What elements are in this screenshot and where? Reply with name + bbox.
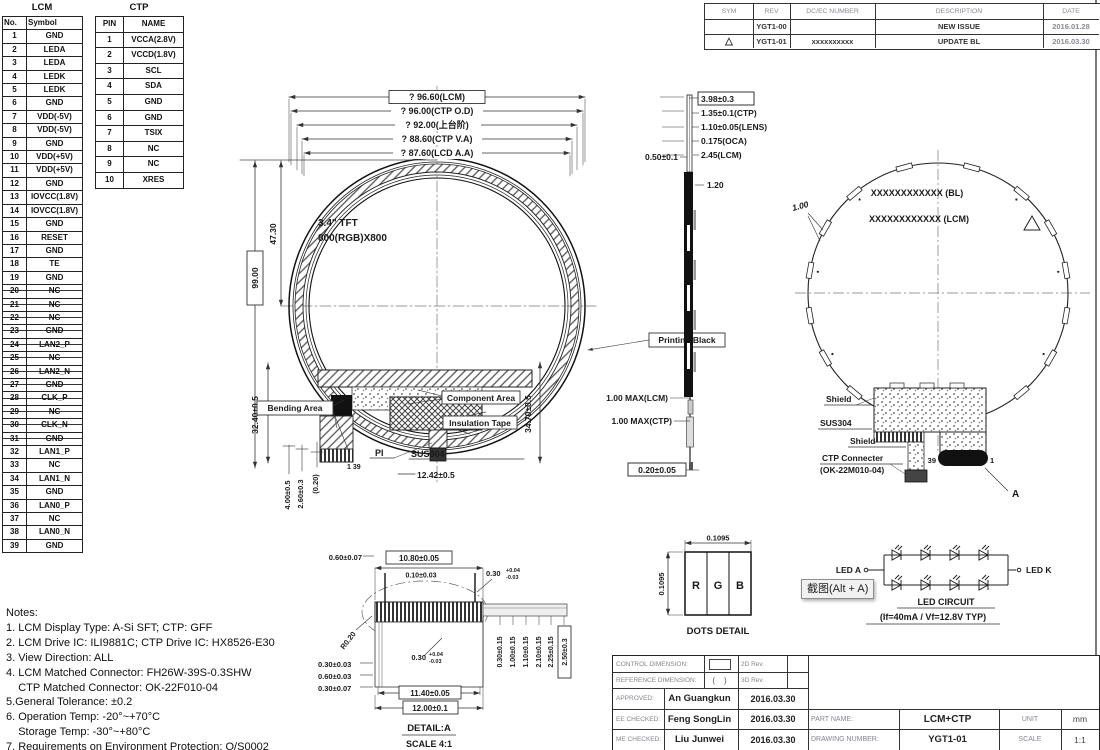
table-cell: 25 (3, 352, 27, 365)
dim-pitch: 0.30 (486, 569, 501, 578)
dim-label-ctp-od: ? 96.00(CTP O.D) (401, 106, 474, 116)
dots-detail-title: DOTS DETAIL (687, 626, 750, 637)
dim-010-003: 0.10±0.03 (405, 573, 436, 580)
table-cell: CLK_P (27, 392, 83, 405)
part-name-label: PART NAME: (808, 709, 900, 730)
leader-100a (808, 213, 823, 230)
ctp-connecter-pn-label: (OK-22M010-04) (820, 465, 884, 475)
note-line: 6. Operation Temp: -20°~+70°C (6, 710, 336, 725)
dim-label-lcm-diameter: ? 96.60(LCM) (409, 92, 465, 102)
table-row: 39GND (3, 539, 83, 552)
table-cell: 2 (3, 43, 27, 56)
table-cell: NC (124, 141, 184, 157)
table-cell: 32 (3, 446, 27, 459)
table-row: 35GND (3, 486, 83, 499)
approved-name: An Guangkun (661, 688, 739, 710)
table-cell: NC (27, 298, 83, 311)
table-cell: 6 (96, 110, 124, 126)
dim-r020: R0.20 (338, 630, 357, 651)
shield-tab (950, 383, 964, 388)
table-cell: TSIX (124, 126, 184, 142)
table-cell: VDD(+5V) (27, 151, 83, 164)
table-row: 12GND (3, 177, 83, 190)
control-dimension-symbol (701, 656, 739, 673)
table-cell: 38 (3, 526, 27, 539)
table-row: 29NC (3, 405, 83, 418)
dim-r-250: 2.50±0.3 (562, 638, 569, 665)
table-row: 4LEDK (3, 70, 83, 83)
table-cell: 20 (3, 285, 27, 298)
table-cell: GND (27, 271, 83, 284)
table-cell: 5 (96, 94, 124, 110)
table-cell: 27 (3, 378, 27, 391)
table-cell: 9 (96, 157, 124, 173)
table-cell: 24 (3, 338, 27, 351)
table-row: 5GND (96, 94, 184, 110)
dim-label-4730: 47.30 (268, 223, 278, 245)
table-row: 20NC (3, 285, 83, 298)
note-line: 7. Requirements on Environment Protectio… (6, 740, 336, 750)
approved-date: 2016.03.30 (738, 688, 809, 710)
table-row: 32LAN1_P (3, 446, 83, 459)
led-spec-label: (If=40mA / Vf=12.8V TYP) (880, 612, 986, 622)
table-cell: 14 (3, 204, 27, 217)
tail-tip (689, 462, 693, 470)
table-cell: LAN1_P (27, 446, 83, 459)
table-cell: 1 (3, 30, 27, 43)
me-checked-label: ME CHECKED: (613, 729, 665, 750)
ctp-fpc-strip (908, 442, 924, 470)
table-row: 3LEDA (3, 57, 83, 70)
table-cell: NC (27, 459, 83, 472)
table-cell: 4 (96, 79, 124, 95)
table-cell: 34 (3, 472, 27, 485)
dim-label-lcd-aa: ? 87.60(LCD A.A) (401, 148, 474, 158)
ctp-table-title: CTP (95, 2, 183, 13)
table-cell: GND (27, 486, 83, 499)
note-line: 3. View Direction: ALL (6, 651, 336, 666)
gap-label: 0.50±0.1 (645, 152, 678, 162)
ee-checked-name: Feng SongLin (661, 709, 739, 730)
component-area-label: Component Area (447, 393, 515, 403)
drawing-number-label: DRAWING NUMBER: (808, 729, 900, 750)
dim-label-020: (0.20) (311, 474, 320, 494)
table-row: 16RESET (3, 231, 83, 244)
dots-width-dim: 0.1095 (707, 534, 730, 543)
rev-r1-date: 2016.01.28 (1043, 19, 1099, 35)
table-row: 30CLK_N (3, 419, 83, 432)
rev-3d-value (784, 672, 809, 689)
table-cell: NC (27, 311, 83, 324)
table-cell: 29 (3, 405, 27, 418)
circuit-wires (868, 555, 1016, 585)
dim-label-100: 1.00 (791, 199, 810, 213)
dot-g: G (714, 580, 723, 592)
table-cell: 16 (3, 231, 27, 244)
table-cell: SCL (124, 63, 184, 79)
sus304-label: SUS304 (411, 449, 445, 459)
fpc-tail (429, 430, 447, 448)
pin-comb (375, 602, 483, 622)
panel-resolution-label: 800(RGB)X800 (318, 233, 387, 244)
table-cell: GND (27, 97, 83, 110)
note-line: 4. LCM Matched Connector: FH26W-39S-0.3S… (6, 666, 336, 681)
table-cell: GND (27, 137, 83, 150)
table-row: 21NC (3, 298, 83, 311)
table-row: 2VCCD(1.8V) (96, 48, 184, 64)
title-block-blank-area (808, 656, 1099, 710)
ee-checked-label: EE CHECKED: (613, 709, 665, 730)
bottom-small-dims (283, 442, 323, 474)
table-cell: 15 (3, 218, 27, 231)
table-row: 3SCL (96, 63, 184, 79)
table-row: 6GND (96, 110, 184, 126)
rev-header-sym: SYM (705, 4, 754, 20)
table-row: 8NC (96, 141, 184, 157)
table-cell: VCCA(2.8V) (124, 32, 184, 48)
table-cell: 33 (3, 459, 27, 472)
table-cell: LEDK (27, 84, 83, 97)
table-row: 8VDD(-5V) (3, 124, 83, 137)
rev-header-desc: DESCRIPTION (875, 4, 1044, 20)
dim-label-step: ? 92.00(上台阶) (405, 119, 469, 130)
table-row: 24LAN2_P (3, 338, 83, 351)
control-dimension-label: CONTROL DIMENSION: (613, 656, 705, 673)
table-cell: 8 (96, 141, 124, 157)
stack-oca-label: 0.175(OCA) (701, 136, 747, 146)
dim-1140: 11.40±0.05 (410, 689, 450, 698)
dim-r-210: 2.10±0.15 (536, 636, 543, 667)
stiffener-plate (483, 604, 567, 616)
ctp-pin-table: PINNAME1VCCA(2.8V)2VCCD(1.8V)3SCL4SDA5GN… (95, 16, 184, 189)
table-cell: 9 (3, 137, 27, 150)
me-checked-name: Liu Junwei (661, 729, 739, 750)
note-line: Storage Temp: -30°~+80°C (6, 725, 336, 740)
back-view-drawing: XXXXXXXXXXXX (BL) XXXXXXXXXXXX (LCM) 1.0… (791, 150, 1090, 500)
lcm-part-number-label: XXXXXXXXXXXX (LCM) (869, 214, 969, 224)
table-row: 2LEDA (3, 43, 83, 56)
table-row: 23GND (3, 325, 83, 338)
table-cell: GND (27, 30, 83, 43)
shield-tab (890, 383, 904, 388)
table-row: 10XRES (96, 172, 184, 188)
tape-bump (694, 260, 697, 280)
column-header: NAME (124, 17, 184, 33)
table-cell: VDD(-5V) (27, 124, 83, 137)
table-cell: SDA (124, 79, 184, 95)
note-line: CTP Matched Connector: OK-22F010-04 (6, 681, 336, 696)
dim-label-260: 2.60±0.3 (296, 479, 305, 508)
table-cell: GND (27, 244, 83, 257)
dim-1200: 12.00±0.1 (412, 704, 448, 713)
table-cell: VCCD(1.8V) (124, 48, 184, 64)
dim-label-9900: 99.00 (250, 267, 260, 289)
sus304-comb (874, 432, 924, 442)
table-cell: LAN0_N (27, 526, 83, 539)
dim-1080: 10.80±0.05 (399, 554, 440, 563)
table-cell: LAN0_P (27, 499, 83, 512)
sus304-label: SUS304 (820, 418, 852, 428)
pin-1-39-marks: 1 39 (347, 464, 361, 471)
table-cell: 18 (3, 258, 27, 271)
table-cell: GND (27, 378, 83, 391)
table-row: 6GND (3, 97, 83, 110)
stack-ctp-label: 1.35±0.1(CTP) (701, 108, 757, 118)
table-cell: LEDA (27, 43, 83, 56)
note-line: Notes: (6, 606, 336, 621)
leader-detail-a (985, 468, 1008, 491)
notes-block: Notes:1. LCM Display Type: A-Si SFT; CTP… (6, 606, 336, 750)
table-row: 13IOVCC(1.8V) (3, 191, 83, 204)
table-cell: GND (27, 539, 83, 552)
table-row: 18TE (3, 258, 83, 271)
dim-label-1242: 12.42±0.5 (417, 470, 455, 480)
table-cell: TE (27, 258, 83, 271)
table-cell: 30 (3, 419, 27, 432)
table-cell: GND (27, 325, 83, 338)
stack-total-label: 3.98±0.3 (701, 94, 734, 104)
table-row: 11VDD(+5V) (3, 164, 83, 177)
table-cell: 17 (3, 244, 27, 257)
table-cell: 31 (3, 432, 27, 445)
shield-label-top: Shield (826, 394, 852, 404)
column-header: No. (3, 17, 27, 30)
table-cell: 26 (3, 365, 27, 378)
rev-r1-sym (705, 19, 754, 35)
table-cell: 3 (96, 63, 124, 79)
rev-header-dc: DC/EC NUMBER (790, 4, 876, 20)
table-row: 31GND (3, 432, 83, 445)
tape-bump (694, 352, 697, 372)
rev-r1-dc (790, 19, 876, 35)
table-cell: LAN2_P (27, 338, 83, 351)
rev-r2-date: 2016.03.30 (1043, 34, 1099, 48)
dots-detail-drawing: R G B 0.1095 0.1095 DOTS DETAIL (657, 533, 751, 637)
table-row: 1VCCA(2.8V) (96, 32, 184, 48)
led-cathode-label: LED K (1026, 565, 1052, 575)
tape-bump (694, 310, 697, 330)
part-name-value: LCM+CTP (896, 709, 1000, 730)
approved-label: APPROVED: (613, 688, 665, 710)
note-line: 2. LCM Drive IC: ILI9881C; CTP Drive IC:… (6, 636, 336, 651)
table-row: 36LAN0_P (3, 499, 83, 512)
table-cell: NC (27, 352, 83, 365)
rev-r2-desc: UPDATE BL (875, 34, 1044, 48)
shield-tab (920, 383, 934, 388)
table-row: 4SDA (96, 79, 184, 95)
table-cell: 13 (3, 191, 27, 204)
table-cell: VDD(+5V) (27, 164, 83, 177)
table-cell: GND (124, 94, 184, 110)
table-cell: RESET (27, 231, 83, 244)
bezel-step-bar (318, 370, 532, 387)
detail-a-title: DETAIL:A (407, 723, 451, 734)
table-cell: 5 (3, 84, 27, 97)
dim-mid-030: 0.30 (411, 653, 426, 662)
lcm-pin-table: No.Symbol1GND2LEDA3LEDA4LEDK5LEDK6GND7VD… (2, 16, 83, 553)
reference-dimension-symbol: ( ) (701, 672, 739, 689)
ee-checked-date: 2016.03.30 (738, 709, 809, 730)
table-cell: 10 (3, 151, 27, 164)
table-cell: 7 (96, 126, 124, 142)
dim-label-ctp-va: ? 88.60(CTP V.A) (401, 134, 472, 144)
table-cell: XRES (124, 172, 184, 188)
table-row: 1GND (3, 30, 83, 43)
ctp-fpc-bump (687, 417, 694, 447)
detail-a-drawing: 0.60±0.07 10.80±0.05 0.10±0.03 0.30 +0.0… (318, 551, 571, 749)
table-row: 9GND (3, 137, 83, 150)
table-cell: LEDK (27, 70, 83, 83)
control-symbol-box (709, 659, 731, 670)
table-cell: NC (124, 157, 184, 173)
table-row: 10VDD(+5V) (3, 151, 83, 164)
dim-label-400: 4.00±0.5 (283, 480, 292, 509)
dim-r-225: 2.25±0.15 (548, 636, 555, 667)
detail-a-ref-label: A (1012, 489, 1019, 500)
title-block: CONTROL DIMENSION: 2D Rev. REFERENCE DIM… (612, 655, 1100, 750)
column-header: PIN (96, 17, 124, 33)
table-cell: 21 (3, 298, 27, 311)
front-view-drawing: ? 96.60(LCM) ? 96.00(CTP O.D) ? 92.00(上台… (240, 86, 725, 510)
tape-bump (694, 210, 697, 230)
pi-label: PI (375, 448, 384, 458)
ctp-connecter-label: CTP Connecter (822, 453, 884, 463)
dim-label-3470: 34.70±0.5 (523, 395, 533, 433)
table-cell: 3 (3, 57, 27, 70)
table-row: 37NC (3, 513, 83, 526)
table-cell: 19 (3, 271, 27, 284)
scale-value: 1:1 (1061, 729, 1099, 750)
rev-r1-rev: YGT1-00 (753, 19, 791, 35)
lcm-fpc-bump (688, 400, 693, 414)
unit-value: mm (1061, 709, 1099, 730)
dim-r-100: 1.00±0.15 (510, 636, 517, 667)
pin1-mark: 1 (990, 456, 994, 465)
table-row: 5LEDK (3, 84, 83, 97)
dim-pitch-minus: -0.03 (506, 575, 519, 581)
ctp-connecter-leader (890, 464, 905, 474)
shield-label-bottom: Shield (850, 436, 876, 446)
table-cell: 8 (3, 124, 27, 137)
table-cell: 10 (96, 172, 124, 188)
stack-lens-label: 1.10±0.05(LENS) (701, 122, 767, 132)
dot-b: B (736, 580, 744, 592)
table-row: 7VDD(-5V) (3, 110, 83, 123)
revision-table: SYM REV DC/EC NUMBER DESCRIPTION DATE YG… (704, 3, 1100, 50)
rev-r2-dc: xxxxxxxxxx (790, 34, 876, 48)
bl-part-number-label: XXXXXXXXXXXX (BL) (871, 188, 964, 198)
revision-triangle-mark (1024, 216, 1040, 230)
step-120-label: 1.20 (707, 180, 724, 190)
stack-lcm-label: 2.45(LCM) (701, 150, 742, 160)
panel-size-label: 3.4" TFT (318, 218, 358, 229)
table-row: 38LAN0_N (3, 526, 83, 539)
profile-slot (687, 225, 690, 251)
table-row: 34LAN1_N (3, 472, 83, 485)
table-cell: CLK_N (27, 419, 83, 432)
table-row: 7TSIX (96, 126, 184, 142)
table-cell: 6 (3, 97, 27, 110)
dim-mid-plus: +0.04 (429, 652, 444, 658)
table-row: 19GND (3, 271, 83, 284)
table-cell: 28 (3, 392, 27, 405)
dim-r-110: 1.10±0.15 (523, 636, 530, 667)
unit-label: UNIT (999, 709, 1062, 730)
rev-r2-sym: △ (705, 34, 754, 48)
rev-2d-label: 2D Rev. (738, 656, 788, 673)
table-cell: 22 (3, 311, 27, 324)
pin39-mark: 39 (928, 456, 936, 465)
rev-r1-desc: NEW ISSUE (875, 19, 1044, 35)
column-header: Symbol (27, 17, 83, 30)
table-cell: LAN1_N (27, 472, 83, 485)
table-cell: GND (27, 218, 83, 231)
table-row: 28CLK_P (3, 392, 83, 405)
table-cell: 12 (3, 177, 27, 190)
table-cell: NC (27, 405, 83, 418)
table-row: 14IOVCC(1.8V) (3, 204, 83, 217)
lcm-connector-oval (938, 450, 988, 466)
table-cell: 35 (3, 486, 27, 499)
table-cell: 39 (3, 539, 27, 552)
ctp-connector-body (905, 470, 927, 482)
table-cell: IOVCC(1.8V) (27, 191, 83, 204)
led-anode-label: LED A (836, 565, 861, 575)
table-cell: 23 (3, 325, 27, 338)
table-cell: GND (27, 432, 83, 445)
table-row: 15GND (3, 218, 83, 231)
dim-r-030: 0.30±0.15 (497, 636, 504, 667)
table-cell: 1 (96, 32, 124, 48)
lcm-table-title: LCM (2, 2, 82, 13)
rev-header-date: DATE (1043, 4, 1099, 20)
table-row: 33NC (3, 459, 83, 472)
table-row: 9NC (96, 157, 184, 173)
note-line: 5.General Tolerance: ±0.2 (6, 695, 336, 710)
rev-3d-label: 3D Rev. (738, 672, 788, 689)
dim-mid-minus: -0.03 (429, 659, 442, 665)
table-cell: VDD(-5V) (27, 110, 83, 123)
table-cell: 37 (3, 513, 27, 526)
tail-thickness-label: 0.20±0.05 (638, 465, 676, 475)
rev-2d-value (784, 656, 809, 673)
profile-slot (687, 285, 690, 311)
table-cell: GND (124, 110, 184, 126)
ctp-max-label: 1.00 MAX(CTP) (612, 416, 673, 426)
detail-a-scale: SCALE 4:1 (406, 739, 452, 749)
leader-printing-black (588, 340, 649, 350)
node-k (1017, 568, 1021, 572)
note-line: 1. LCM Display Type: A-Si SFT; CTP: GFF (6, 621, 336, 636)
insulation-tape-label: Insulation Tape (449, 418, 511, 428)
table-cell: LAN2_N (27, 365, 83, 378)
rev-header-rev: REV (753, 4, 791, 20)
table-row: 25NC (3, 352, 83, 365)
side-view-drawing: 3.98±0.3 1.35±0.1(CTP) 1.10±0.05(LENS) 0… (606, 92, 767, 476)
table-row: 26LAN2_N (3, 365, 83, 378)
dim-060-007: 0.60±0.07 (329, 553, 362, 562)
led-circuit-title: LED CIRCUIT (918, 597, 975, 607)
drawing-number-value: YGT1-01 (896, 729, 1000, 750)
reference-dimension-label: REFERENCE DIMENSION: (613, 672, 705, 689)
shield-plate (874, 388, 986, 432)
node-a (864, 568, 868, 572)
table-cell: 4 (3, 70, 27, 83)
dots-height-dim: 0.1095 (657, 573, 666, 596)
table-cell: 11 (3, 164, 27, 177)
table-cell: 2 (96, 48, 124, 64)
lcm-connector-comb (320, 449, 353, 462)
